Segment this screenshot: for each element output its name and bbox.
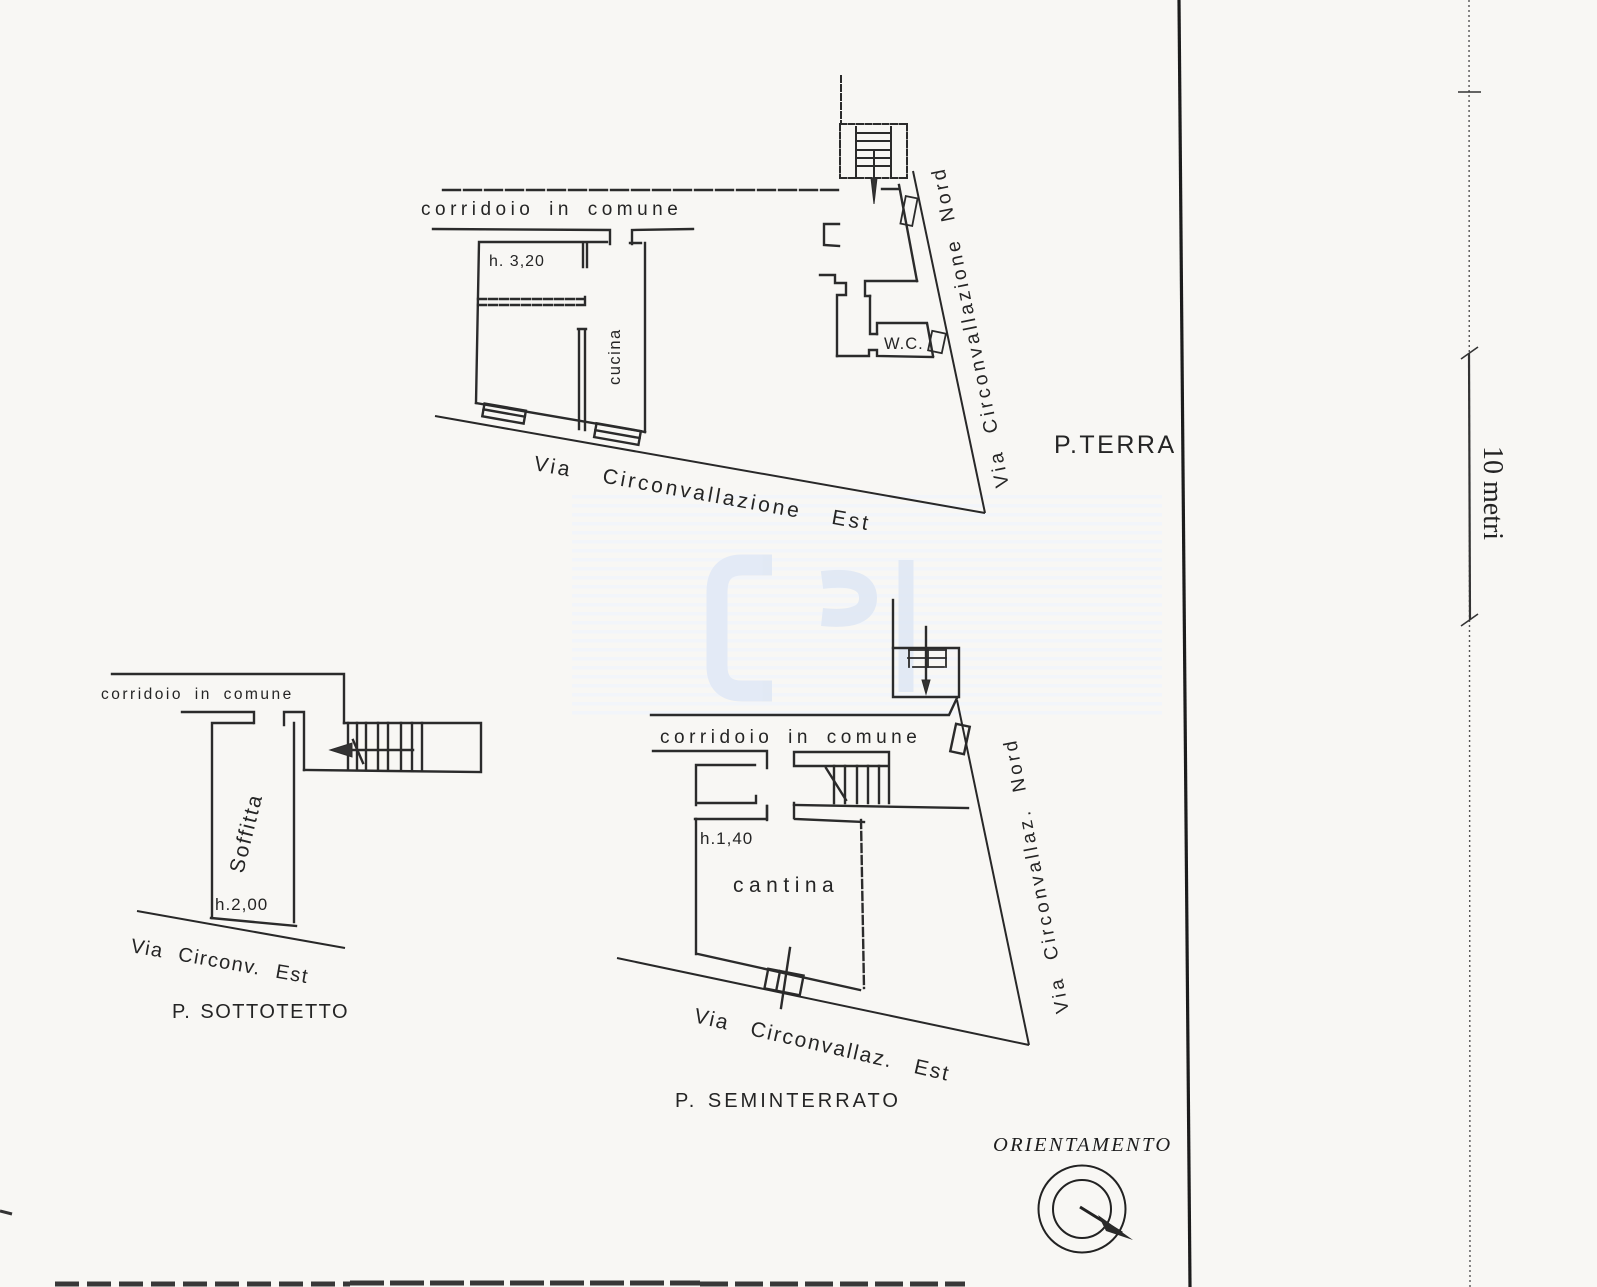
svg-text:W.C.: W.C. (884, 335, 924, 353)
svg-text:Via Circonvallaz. Nord: Via Circonvallaz. Nord (1000, 736, 1074, 1015)
svg-text:corridoio in comune: corridoio in comune (660, 727, 921, 748)
svg-text:h.2,00: h.2,00 (215, 895, 268, 914)
svg-text:Via Circonvallaz. Est: Via Circonvallaz. Est (692, 1004, 953, 1085)
svg-text:cantina: cantina (733, 874, 839, 897)
svg-text:h. 3,20: h. 3,20 (489, 253, 545, 270)
svg-text:P.TERRA: P.TERRA (1054, 431, 1177, 459)
svg-text:ORIENTAMENTO: ORIENTAMENTO (993, 1134, 1172, 1156)
svg-text:h.1,40: h.1,40 (700, 829, 753, 848)
svg-text:Soffitta: Soffitta (226, 791, 268, 875)
svg-text:P. SOTTOTETTO: P. SOTTOTETTO (172, 1001, 349, 1023)
svg-text:P. SEMINTERRATO: P. SEMINTERRATO (675, 1090, 901, 1112)
svg-text:10 metri: 10 metri (1477, 446, 1508, 540)
svg-text:Via Circonv. Est: Via Circonv. Est (129, 935, 311, 988)
svg-text:corridoio in comune: corridoio in comune (421, 199, 682, 220)
svg-text:corridoio in comune: corridoio in comune (101, 686, 294, 703)
svg-text:cucina: cucina (606, 328, 624, 385)
